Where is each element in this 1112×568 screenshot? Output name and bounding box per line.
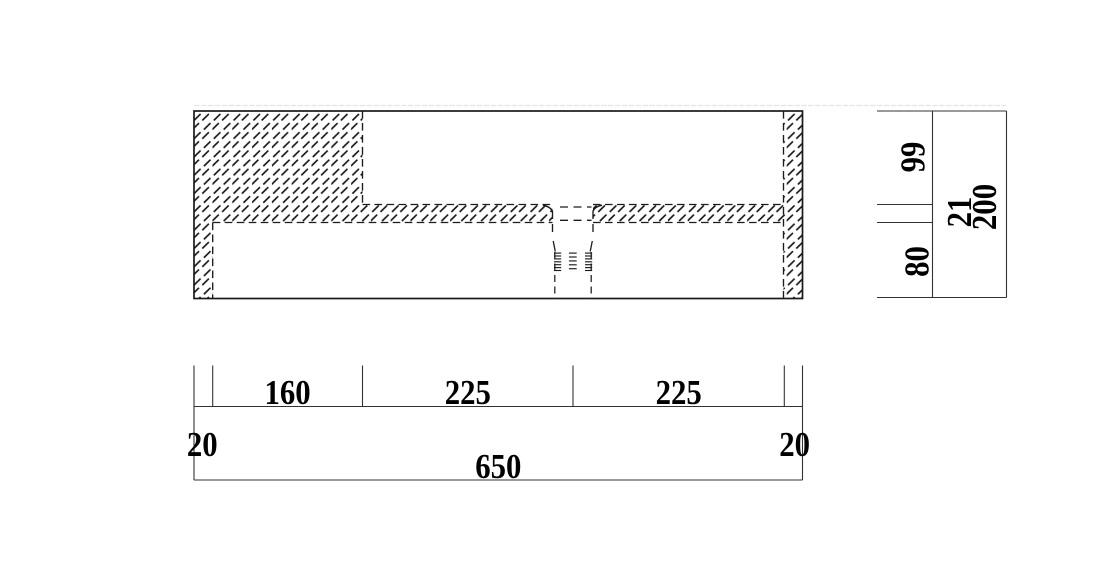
svg-text:200: 200 — [966, 184, 1004, 230]
svg-text:225: 225 — [656, 374, 702, 412]
svg-text:99: 99 — [895, 142, 933, 173]
svg-text:650: 650 — [475, 448, 521, 486]
svg-text:20: 20 — [779, 426, 810, 464]
svg-text:160: 160 — [265, 374, 311, 412]
svg-text:20: 20 — [187, 426, 218, 464]
svg-text:80: 80 — [899, 246, 937, 277]
svg-text:225: 225 — [445, 374, 491, 412]
